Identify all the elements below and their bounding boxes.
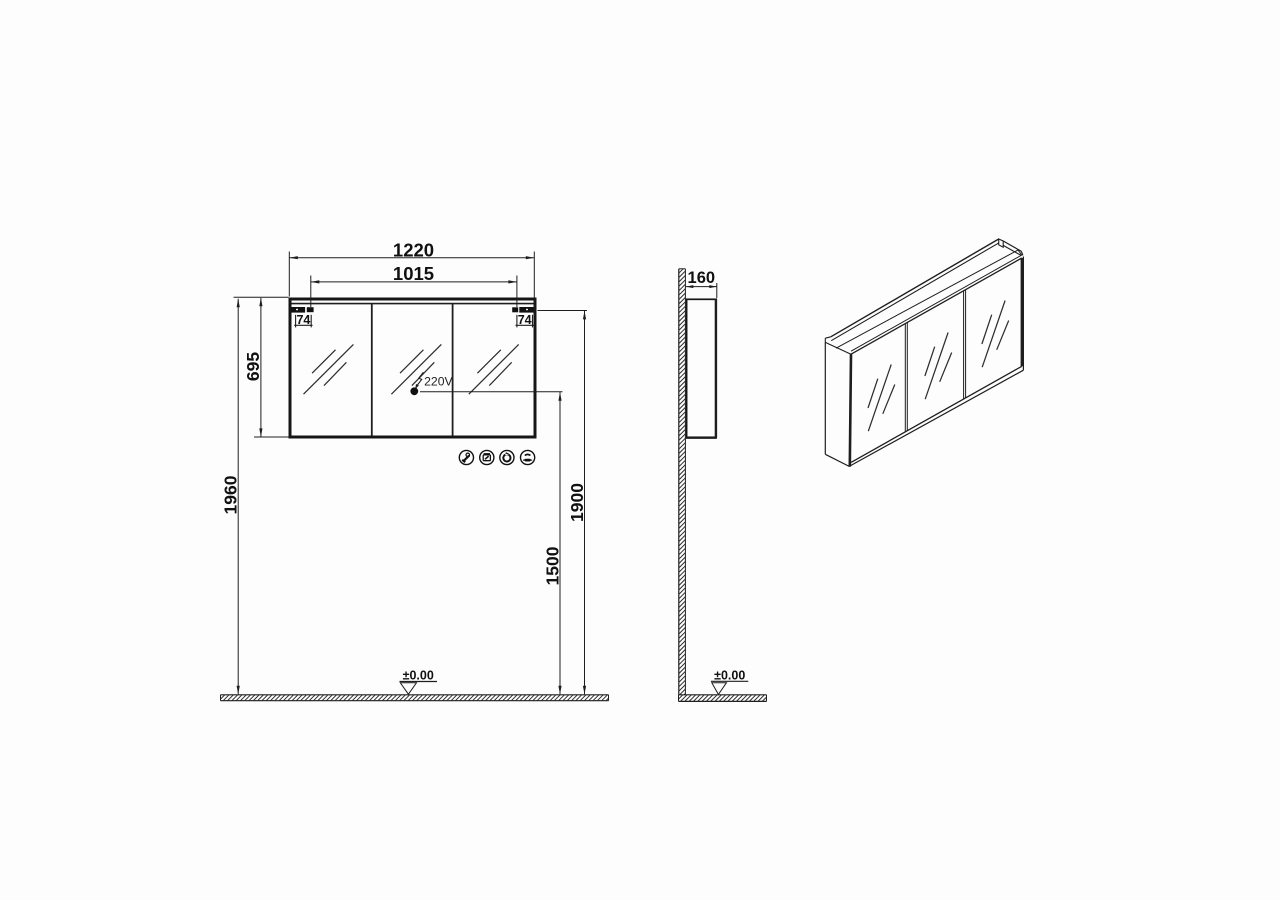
svg-text:±0.00: ±0.00 [403, 668, 434, 682]
svg-text:±0.00: ±0.00 [714, 668, 745, 682]
svg-text:74: 74 [296, 313, 310, 327]
svg-text:1220: 1220 [393, 239, 434, 260]
svg-text:160: 160 [688, 269, 716, 287]
svg-text:1015: 1015 [393, 263, 434, 284]
svg-text:220V: 220V [424, 374, 453, 388]
svg-text:1900: 1900 [567, 483, 587, 522]
svg-text:1960: 1960 [221, 475, 241, 514]
svg-text:1500: 1500 [542, 546, 562, 585]
svg-text:74: 74 [518, 313, 532, 327]
svg-text:695: 695 [243, 352, 263, 381]
